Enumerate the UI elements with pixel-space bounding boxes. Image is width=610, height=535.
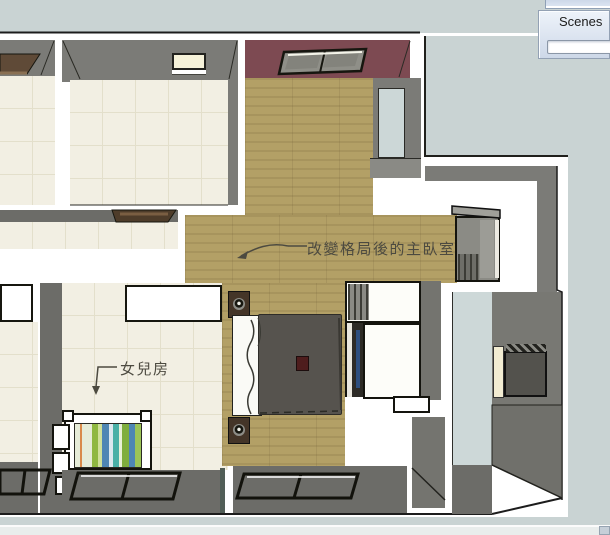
farleft-cabinet xyxy=(0,284,33,322)
hall-wall-top xyxy=(0,210,178,222)
closet-panel xyxy=(480,220,494,278)
bay-window-glass xyxy=(378,88,405,158)
room2-wall-right xyxy=(228,40,238,205)
room2-wall-top xyxy=(62,40,238,82)
annotation-master-bedroom: 改變格局後的主臥室 xyxy=(307,238,456,259)
hall-floor xyxy=(0,222,178,249)
room1-wall-top xyxy=(0,40,55,78)
wall-edge-teal xyxy=(220,468,225,514)
scenes-panel-title[interactable]: Scenes xyxy=(559,14,602,29)
daughter-cabinet xyxy=(125,285,222,322)
wardrobe-upper xyxy=(345,281,421,323)
tray-panel-edge[interactable] xyxy=(545,0,610,9)
bed-duvet xyxy=(258,314,342,415)
daughter-bedding xyxy=(74,423,142,468)
wardrobe-side-wall xyxy=(421,281,441,400)
right-window-pane xyxy=(504,351,547,397)
farleft-floor xyxy=(0,322,38,463)
nightstand xyxy=(228,417,250,444)
nightstand xyxy=(228,291,250,318)
viewport-3d[interactable]: 改變格局後的主臥室 女兒房 xyxy=(0,0,610,535)
right-window-sill xyxy=(493,346,504,398)
master-wall-maroon xyxy=(245,40,410,80)
room2-window-sill xyxy=(172,70,206,75)
entry-closet xyxy=(455,216,500,282)
closet-slats xyxy=(458,254,479,280)
scenes-list-field[interactable] xyxy=(547,40,610,54)
annotation-daughter-room: 女兒房 xyxy=(120,358,170,379)
hanging-clothes xyxy=(356,330,360,388)
closet-edge xyxy=(495,220,499,278)
right-window-louver xyxy=(506,344,546,352)
wardrobe-door xyxy=(363,323,421,399)
room1-floor xyxy=(0,76,55,205)
wardrobe-edge xyxy=(345,323,352,397)
master-bottom-wall xyxy=(233,466,407,515)
master-floor-top xyxy=(245,78,373,215)
daughter-bottom-wall xyxy=(62,470,222,514)
bed-post xyxy=(140,410,152,422)
resize-grip[interactable] xyxy=(599,526,610,535)
farleft-bottom-wall xyxy=(0,462,38,514)
daughter-drawer xyxy=(52,424,70,450)
nightstand-lamp-icon xyxy=(233,424,245,436)
wall-right-v xyxy=(537,166,557,292)
room2-window xyxy=(172,53,206,70)
wardrobe-open-gap xyxy=(352,323,363,397)
corridor-wall xyxy=(412,417,445,508)
nightstand-lamp-icon xyxy=(233,298,245,310)
bay-window-sill xyxy=(370,158,421,178)
duvet-label xyxy=(296,356,309,371)
app-window: 改變格局後的主臥室 女兒房 Scenes xyxy=(0,0,610,535)
doorway-panel xyxy=(393,396,430,413)
status-bar xyxy=(0,525,610,535)
wardrobe-upper-cab xyxy=(348,284,369,320)
room2-floor xyxy=(70,80,228,205)
bathroom-floor xyxy=(452,292,492,465)
bed-post xyxy=(62,410,74,422)
scenes-panel[interactable]: Scenes xyxy=(538,10,610,59)
